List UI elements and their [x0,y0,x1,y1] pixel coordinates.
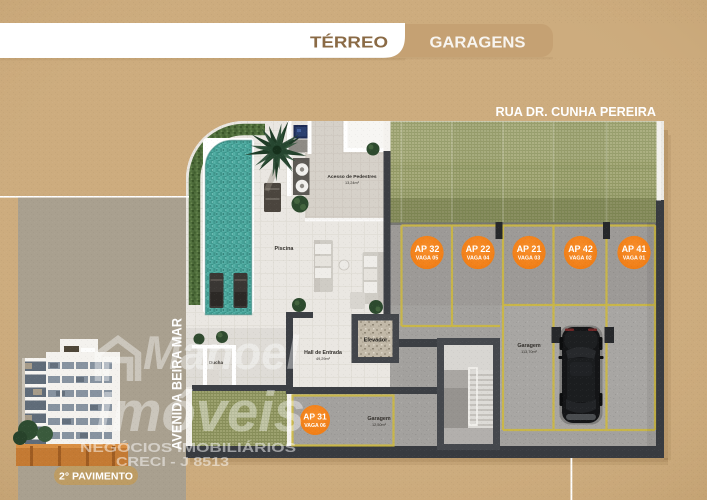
svg-text:TÉRREO: TÉRREO [310,33,388,52]
svg-text:GARAGENS: GARAGENS [430,35,526,52]
